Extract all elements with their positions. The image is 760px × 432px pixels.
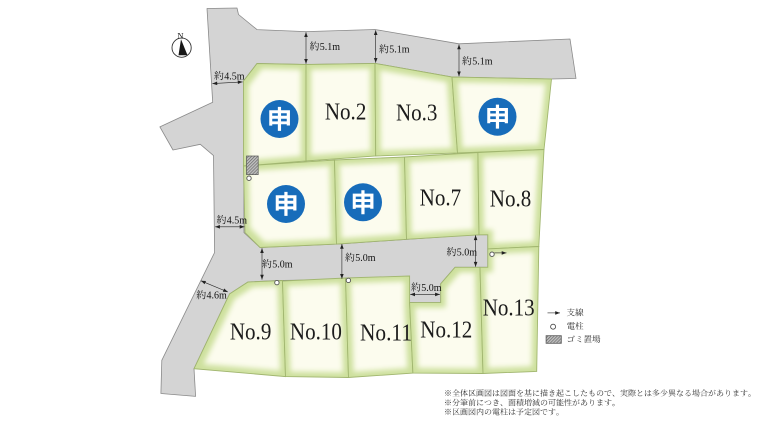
svg-text:No.12: No.12	[420, 318, 472, 344]
svg-text:No.7: No.7	[420, 185, 462, 211]
svg-text:5.1m: 5.1m	[472, 57, 493, 68]
svg-text:No.8: No.8	[490, 187, 532, 213]
svg-text:4.6m: 4.6m	[207, 291, 228, 302]
svg-text:N: N	[177, 31, 183, 41]
svg-text:No.10: No.10	[290, 320, 342, 346]
svg-text:No.11: No.11	[360, 321, 412, 347]
svg-text:5.1m: 5.1m	[320, 42, 341, 53]
svg-text:5.0m: 5.0m	[272, 259, 293, 270]
svg-text:5.0m: 5.0m	[421, 283, 442, 294]
svg-text:No.9: No.9	[230, 320, 272, 346]
svg-text:No.2: No.2	[325, 99, 367, 125]
svg-text:No.13: No.13	[483, 295, 535, 321]
svg-text:No.3: No.3	[396, 101, 438, 127]
svg-text:5.0m: 5.0m	[355, 253, 376, 264]
svg-text:5.1m: 5.1m	[389, 45, 410, 56]
svg-text:5.0m: 5.0m	[457, 247, 478, 258]
svg-text:4.5m: 4.5m	[227, 215, 248, 226]
svg-text:4.5m: 4.5m	[224, 71, 245, 82]
